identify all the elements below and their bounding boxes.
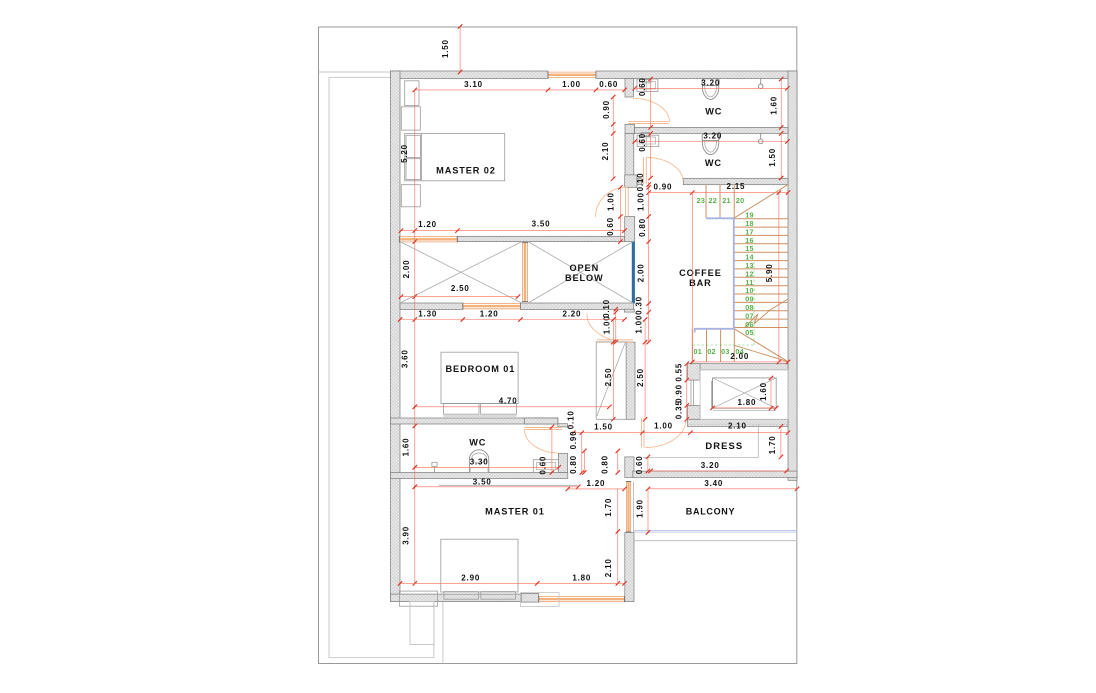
svg-text:0.60: 0.60 [606, 217, 615, 236]
svg-text:05: 05 [745, 328, 754, 337]
svg-text:COFFEE: COFFEE [679, 268, 722, 278]
svg-text:2.10: 2.10 [604, 558, 613, 577]
svg-text:1.70: 1.70 [604, 498, 613, 517]
svg-text:3.50: 3.50 [473, 477, 492, 486]
svg-text:0.60: 0.60 [638, 77, 647, 96]
svg-text:1.00: 1.00 [654, 422, 673, 431]
svg-text:1.00: 1.00 [607, 192, 616, 211]
svg-text:1.60: 1.60 [759, 382, 768, 401]
svg-text:2.50: 2.50 [604, 368, 613, 387]
svg-text:3.20: 3.20 [701, 461, 720, 470]
svg-text:MASTER 02: MASTER 02 [436, 165, 496, 175]
svg-text:22: 22 [708, 196, 717, 205]
svg-text:WC: WC [705, 107, 722, 117]
svg-text:1.20: 1.20 [480, 309, 499, 318]
svg-text:03: 03 [721, 347, 730, 356]
svg-text:3.60: 3.60 [401, 349, 410, 368]
svg-text:0.90: 0.90 [654, 183, 673, 192]
svg-text:1.20: 1.20 [587, 479, 606, 488]
svg-text:0.10: 0.10 [602, 299, 611, 318]
svg-text:0.90: 0.90 [569, 431, 578, 450]
svg-text:5.90: 5.90 [765, 264, 774, 283]
svg-text:1.00: 1.00 [562, 80, 581, 89]
svg-text:0.30: 0.30 [635, 296, 644, 315]
svg-text:2.90: 2.90 [461, 573, 480, 582]
svg-text:5.20: 5.20 [400, 144, 409, 163]
svg-text:23: 23 [697, 196, 706, 205]
svg-text:BEDROOM 01: BEDROOM 01 [446, 364, 516, 374]
svg-text:1.00: 1.00 [635, 315, 644, 334]
svg-text:DRESS: DRESS [705, 440, 743, 451]
svg-text:2.50: 2.50 [451, 284, 470, 293]
svg-text:02: 02 [707, 347, 716, 356]
svg-text:0.80: 0.80 [569, 455, 578, 474]
svg-text:4.70: 4.70 [499, 397, 518, 406]
svg-text:3.40: 3.40 [704, 479, 723, 488]
svg-text:0.60: 0.60 [539, 456, 548, 475]
svg-text:3.10: 3.10 [464, 80, 483, 89]
svg-text:2.00: 2.00 [637, 264, 646, 283]
svg-text:3.50: 3.50 [532, 219, 551, 228]
svg-text:WC: WC [705, 158, 722, 168]
svg-text:3.20: 3.20 [701, 79, 720, 88]
svg-text:0.90: 0.90 [675, 384, 684, 403]
svg-text:0.10: 0.10 [567, 410, 576, 429]
svg-text:1.50: 1.50 [594, 422, 613, 431]
svg-text:MASTER 01: MASTER 01 [485, 507, 545, 517]
svg-text:0.90: 0.90 [602, 100, 611, 119]
svg-text:OPEN: OPEN [569, 263, 599, 273]
svg-text:0.60: 0.60 [638, 133, 647, 152]
svg-text:2.50: 2.50 [636, 368, 645, 387]
svg-text:3.20: 3.20 [703, 132, 722, 141]
svg-text:1.50: 1.50 [768, 148, 777, 167]
svg-text:0.10: 0.10 [636, 173, 645, 192]
svg-text:1.30: 1.30 [418, 309, 437, 318]
svg-text:1.00: 1.00 [602, 316, 611, 335]
svg-text:1.00: 1.00 [637, 192, 646, 211]
svg-text:1.90: 1.90 [636, 499, 645, 518]
svg-text:0.55: 0.55 [675, 363, 684, 382]
svg-text:01: 01 [693, 347, 702, 356]
svg-text:21: 21 [722, 196, 731, 205]
svg-text:2.15: 2.15 [727, 182, 746, 191]
svg-text:0.80: 0.80 [601, 455, 610, 474]
svg-text:1.80: 1.80 [738, 398, 757, 407]
svg-text:2.10: 2.10 [601, 142, 610, 161]
svg-text:2.00: 2.00 [730, 352, 749, 361]
svg-text:1.50: 1.50 [441, 39, 450, 58]
svg-text:1.60: 1.60 [402, 438, 411, 457]
svg-text:2.10: 2.10 [728, 422, 747, 431]
svg-text:1.20: 1.20 [418, 220, 437, 229]
svg-text:0.35: 0.35 [675, 400, 684, 419]
svg-text:2.00: 2.00 [402, 260, 411, 279]
svg-text:2.20: 2.20 [563, 309, 582, 318]
svg-text:1.70: 1.70 [768, 436, 777, 455]
svg-text:0.80: 0.80 [638, 218, 647, 237]
svg-text:20: 20 [736, 196, 745, 205]
svg-text:1.60: 1.60 [770, 96, 779, 115]
svg-text:3.30: 3.30 [470, 457, 489, 466]
svg-text:3.90: 3.90 [402, 526, 411, 545]
svg-text:BELOW: BELOW [565, 273, 604, 283]
svg-text:0.60: 0.60 [599, 80, 618, 89]
svg-text:WC: WC [469, 438, 486, 448]
svg-text:1.80: 1.80 [572, 573, 591, 582]
svg-text:0.60: 0.60 [635, 456, 644, 475]
svg-text:BALCONY: BALCONY [686, 506, 735, 516]
